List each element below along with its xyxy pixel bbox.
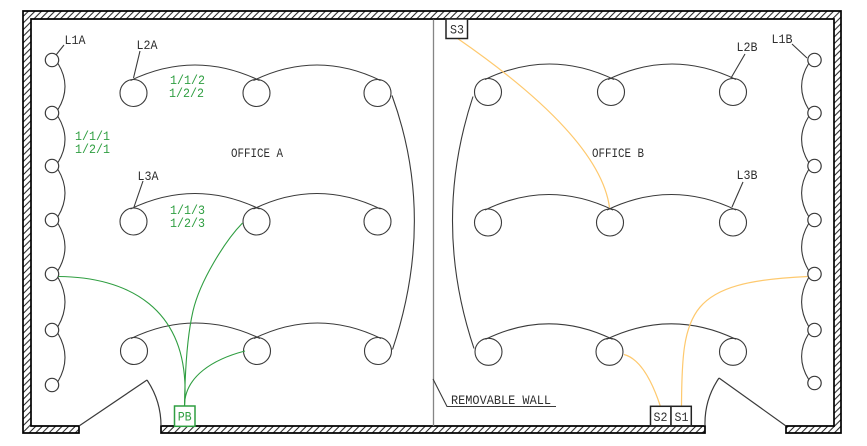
svg-text:L2A: L2A <box>137 38 158 53</box>
svg-text:L1A: L1A <box>65 33 86 48</box>
svg-text:L3B: L3B <box>737 168 758 183</box>
svg-text:REMOVABLE WALL: REMOVABLE WALL <box>451 393 551 408</box>
svg-text:L1B: L1B <box>772 32 793 47</box>
svg-text:OFFICE A: OFFICE A <box>231 146 283 161</box>
svg-text:S3: S3 <box>450 23 464 38</box>
svg-text:PB: PB <box>178 410 192 425</box>
svg-text:L2B: L2B <box>737 40 758 55</box>
svg-text:1/2/1: 1/2/1 <box>75 142 110 157</box>
svg-text:S1: S1 <box>675 410 689 425</box>
svg-text:L3A: L3A <box>138 169 159 184</box>
svg-text:OFFICE B: OFFICE B <box>592 146 644 161</box>
svg-text:1/2/2: 1/2/2 <box>169 86 204 101</box>
svg-text:S2: S2 <box>654 410 668 425</box>
svg-text:1/2/3: 1/2/3 <box>170 216 205 231</box>
